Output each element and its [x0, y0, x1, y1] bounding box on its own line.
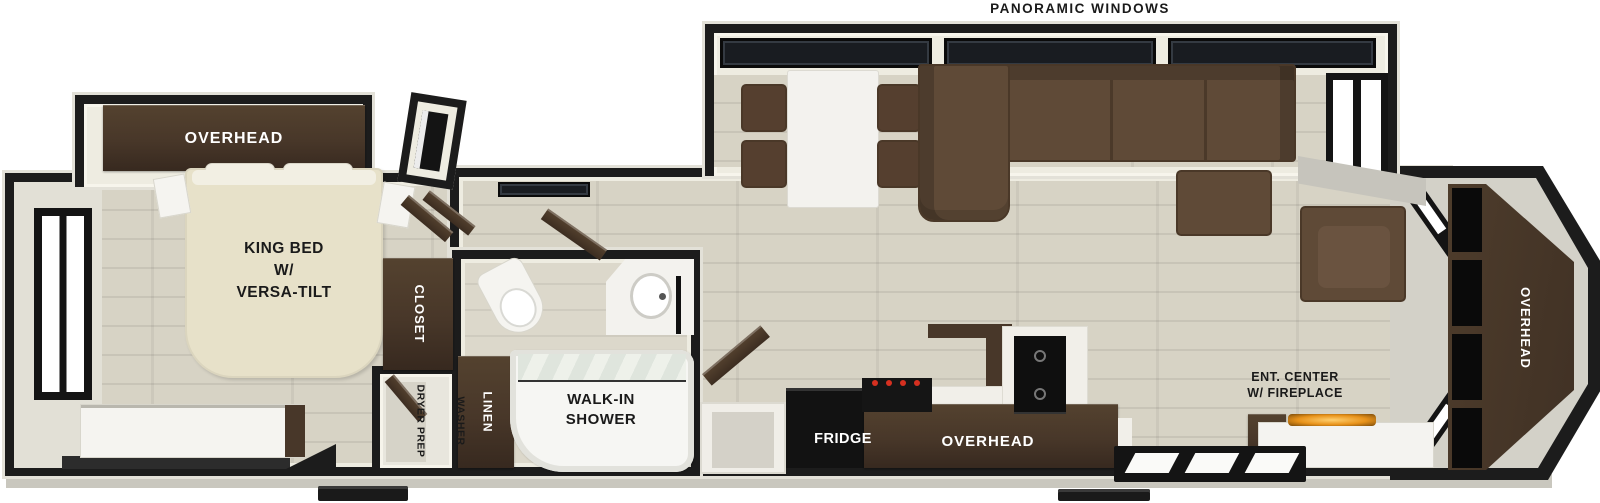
sink-drain-1	[1034, 350, 1046, 362]
bottom-window-pane-2	[1185, 453, 1240, 473]
bath-sink	[630, 273, 672, 319]
bath-sink-drain	[659, 293, 666, 300]
entry-alcove	[700, 402, 786, 474]
ottoman	[1176, 170, 1272, 236]
dining-chair-bottom-right	[877, 140, 921, 188]
bedroom-window	[34, 208, 92, 400]
washer-label-line2: DRYER PREP	[414, 385, 427, 458]
burner-knob-3	[900, 380, 906, 386]
kitchen-overhead-label: OVERHEAD	[888, 432, 1088, 452]
king-bed-label: KING BED W/ VERSA-TILT	[164, 238, 404, 304]
exterior-trim-band	[6, 474, 1552, 488]
sofa-cushion-line-2	[1204, 80, 1207, 160]
sink-drain-2	[1034, 388, 1046, 400]
dresser-top	[285, 405, 305, 457]
kitchen-sink	[1014, 336, 1066, 414]
rear-cubby-2	[1452, 260, 1482, 326]
dining-chair-top-left	[741, 84, 787, 132]
dresser	[80, 404, 304, 458]
exterior-step-front	[318, 486, 408, 501]
ent-center-label: ENT. CENTER W/ FIREPLACE	[1210, 369, 1380, 402]
bed-pillow-band	[192, 170, 376, 185]
living-bottom-window	[1114, 446, 1306, 482]
washer-label: WASHER DRYER PREP	[388, 385, 493, 458]
closet-label: CLOSET	[411, 285, 427, 344]
rear-overhead-label: OVERHEAD	[1517, 287, 1533, 369]
recliner	[1300, 206, 1406, 302]
shower-glass	[518, 354, 686, 382]
hall-window	[498, 182, 590, 197]
fridge-label: FRIDGE	[788, 430, 898, 449]
walk-in-shower-label: WALK-IN SHOWER	[511, 390, 691, 429]
bottom-window-pane-3	[1245, 453, 1300, 473]
linen-label: LINEN	[480, 392, 495, 433]
stove	[862, 378, 932, 412]
burner-knob-1	[872, 380, 878, 386]
bottom-window-pane-1	[1125, 453, 1180, 473]
fridge	[786, 388, 866, 468]
fireplace-glow	[1288, 414, 1376, 426]
rear-cubby-4	[1452, 408, 1482, 468]
dining-chair-bottom-left	[741, 140, 787, 188]
slideout-window-1	[720, 38, 932, 68]
label-panoramic-windows: PANORAMIC WINDOWS	[880, 0, 1280, 18]
floorplan-canvas: PANORAMIC WINDOWS OVERHEAD KING BED W/ V…	[0, 0, 1600, 503]
dining-chair-top-right	[877, 84, 921, 132]
sofa-chaise	[918, 64, 1010, 222]
nightstand-left	[153, 174, 191, 219]
rear-cubby-1	[1452, 188, 1482, 252]
entry-floor	[712, 412, 774, 468]
burner-knob-2	[886, 380, 892, 386]
burner-knob-4	[914, 380, 920, 386]
recliner-cushion	[1318, 226, 1390, 288]
dining-table	[787, 70, 879, 208]
washer-label-line1: WASHER	[453, 385, 466, 458]
sofa-cushion-line-1	[1110, 80, 1113, 160]
exterior-step-mid	[1058, 489, 1150, 501]
bedroom-overhead-label: OVERHEAD	[134, 129, 334, 150]
towel-bar	[676, 276, 681, 334]
rear-cubby-3	[1452, 334, 1482, 400]
